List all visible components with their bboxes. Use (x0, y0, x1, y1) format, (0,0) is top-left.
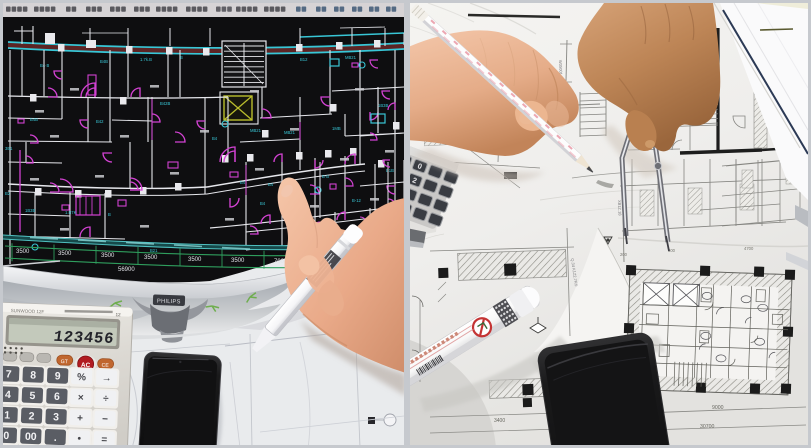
svg-text:−: − (102, 414, 108, 425)
svg-text:3500: 3500 (58, 251, 72, 257)
svg-text:3B1: 3B1 (5, 146, 13, 151)
svg-text:2: 2 (28, 410, 34, 422)
svg-text:9000: 9000 (712, 405, 724, 411)
svg-text:56900: 56900 (118, 267, 135, 273)
svg-text:+: + (77, 413, 83, 424)
svg-text:9: 9 (54, 370, 60, 382)
svg-text:6: 6 (54, 391, 60, 403)
svg-text:B4·B: B4·B (40, 63, 50, 68)
svg-text:3500: 3500 (16, 249, 30, 255)
svg-text:PHILIPS: PHILIPS (157, 299, 181, 306)
svg-text:×: × (78, 393, 84, 404)
svg-text:.: . (54, 432, 57, 444)
svg-text:3400: 3400 (494, 418, 505, 424)
svg-text:1.B7K: 1.B7K (65, 210, 77, 215)
svg-text:30700: 30700 (700, 424, 715, 430)
svg-text:→: → (101, 373, 111, 384)
svg-text:B2: B2 (5, 191, 11, 196)
svg-text:7: 7 (6, 368, 12, 380)
svg-text:200: 200 (620, 252, 628, 257)
svg-text:B21: B21 (150, 248, 158, 253)
svg-text:XB1Z.18: XB1Z.18 (617, 200, 623, 217)
svg-text:0: 0 (3, 430, 9, 442)
svg-text:GT: GT (61, 359, 69, 365)
svg-text:B4B: B4B (30, 117, 38, 122)
svg-text:B4: B4 (212, 136, 218, 141)
svg-text:1B3B: 1B3B (378, 103, 388, 108)
svg-text:3: 3 (53, 411, 59, 423)
svg-text:3500: 3500 (231, 258, 245, 264)
svg-text:1.7k.B: 1.7k.B (140, 57, 152, 62)
svg-text:3500: 3500 (144, 255, 158, 261)
svg-text:B: B (108, 212, 111, 217)
svg-text:MB21: MB21 (345, 55, 357, 60)
svg-text:B42: B42 (96, 119, 104, 124)
svg-text:00: 00 (25, 431, 37, 443)
svg-text:1: 1 (4, 409, 10, 421)
svg-text:B12: B12 (300, 57, 308, 62)
svg-text:4: 4 (5, 389, 11, 401)
svg-text:4700: 4700 (744, 246, 754, 251)
svg-text:B-12: B-12 (352, 198, 362, 203)
svg-text:=: = (101, 434, 107, 445)
svg-text:B4: B4 (268, 182, 274, 187)
svg-text:MB21: MB21 (250, 128, 262, 133)
svg-text:B4: B4 (240, 180, 246, 185)
svg-text:5: 5 (29, 390, 35, 402)
svg-text:B4: B4 (260, 201, 266, 206)
svg-text:3500: 3500 (188, 257, 202, 263)
svg-text:CE: CE (101, 363, 109, 369)
svg-text:3500: 3500 (101, 253, 115, 259)
svg-text:B: B (180, 55, 183, 60)
svg-text:8: 8 (30, 369, 36, 381)
svg-text:B4B: B4B (100, 59, 108, 64)
svg-text:B1B: B1B (386, 168, 394, 173)
svg-text:MB21: MB21 (284, 130, 296, 135)
svg-text:B42B: B42B (160, 101, 170, 106)
svg-text:123456: 123456 (52, 328, 115, 348)
svg-text:B·B: B·B (322, 174, 329, 179)
svg-text:÷: ÷ (103, 394, 109, 405)
svg-text:1MB: 1MB (332, 126, 341, 131)
svg-text:12: 12 (115, 312, 121, 317)
svg-text:1B3B: 1B3B (25, 208, 35, 213)
svg-text:%: % (77, 372, 86, 383)
